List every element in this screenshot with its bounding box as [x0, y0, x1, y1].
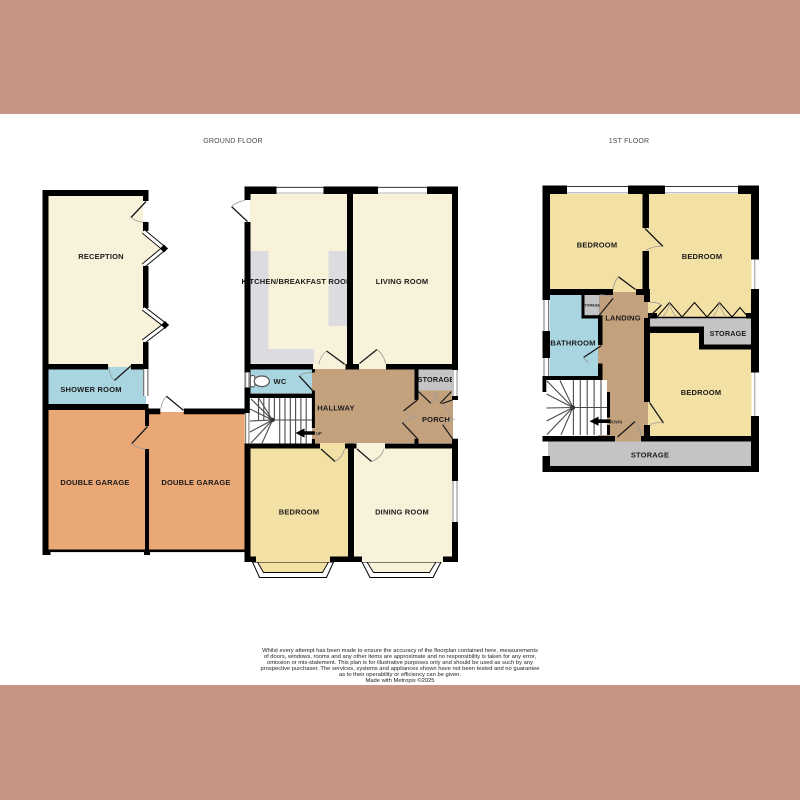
- svg-text:BEDROOM: BEDROOM: [577, 241, 618, 250]
- svg-text:STORAGE: STORAGE: [418, 375, 455, 384]
- svg-text:STORAGE: STORAGE: [710, 329, 747, 338]
- svg-text:GROUND FLOOR: GROUND FLOOR: [203, 138, 263, 145]
- svg-text:1ST FLOOR: 1ST FLOOR: [609, 138, 650, 145]
- svg-text:BEDROOM: BEDROOM: [279, 508, 320, 517]
- svg-text:DOWN: DOWN: [609, 420, 622, 425]
- svg-text:DOUBLE GARAGE: DOUBLE GARAGE: [161, 478, 230, 487]
- svg-text:HALLWAY: HALLWAY: [317, 404, 354, 413]
- svg-text:LANDING: LANDING: [605, 314, 641, 323]
- svg-text:KITCHEN/BREAKFAST ROOM: KITCHEN/BREAKFAST ROOM: [241, 277, 352, 286]
- svg-text:BEDROOM: BEDROOM: [682, 252, 723, 261]
- svg-text:UP: UP: [316, 431, 322, 436]
- svg-text:Made with Metropix ©2025: Made with Metropix ©2025: [365, 677, 434, 684]
- svg-text:SHOWER ROOM: SHOWER ROOM: [60, 385, 121, 394]
- svg-text:LIVING ROOM: LIVING ROOM: [376, 277, 429, 286]
- svg-text:BATHROOM: BATHROOM: [550, 339, 595, 348]
- svg-text:DOUBLE GARAGE: DOUBLE GARAGE: [60, 478, 129, 487]
- svg-text:STORAGE: STORAGE: [582, 304, 600, 308]
- svg-text:DINING ROOM: DINING ROOM: [375, 508, 429, 517]
- svg-text:BEDROOM: BEDROOM: [681, 388, 722, 397]
- svg-text:RECEPTION: RECEPTION: [78, 252, 124, 261]
- svg-text:STORAGE: STORAGE: [631, 451, 669, 460]
- svg-text:WC: WC: [274, 377, 287, 386]
